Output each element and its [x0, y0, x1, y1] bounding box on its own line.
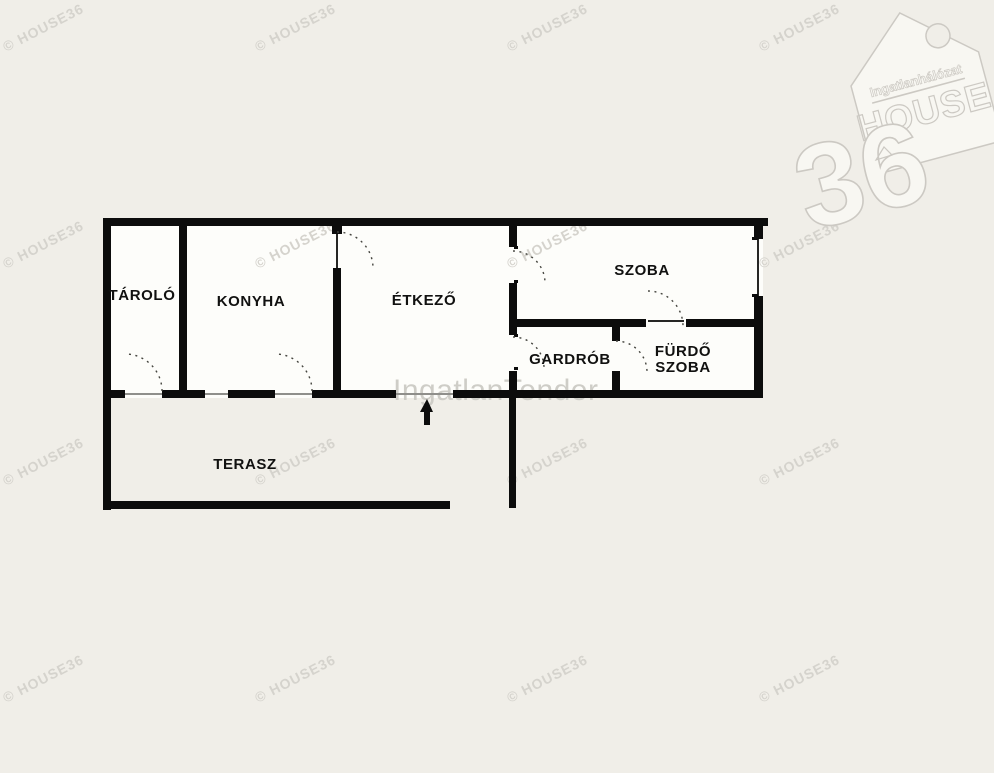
sill-line	[125, 393, 162, 395]
house36-logo: Ingatlanhálózat HOUSE 36	[781, 0, 994, 256]
sill-line	[396, 393, 453, 395]
door-jamb-tick	[514, 280, 518, 283]
sill-line	[275, 393, 312, 395]
watermark-tile: © HOUSE36	[756, 0, 842, 54]
wall-top	[103, 218, 768, 226]
wall-terasz-divider	[509, 398, 516, 508]
door-leaf-etkezo	[336, 234, 338, 268]
watermark-tile: © HOUSE36	[0, 434, 86, 488]
window-tick	[752, 237, 758, 240]
watermark-tile: © HOUSE36	[504, 0, 590, 54]
watermark-tile: © HOUSE36	[252, 651, 338, 705]
room-label-furdoszoba-line2: SZOBA	[655, 359, 711, 376]
wall-bottom-seg	[103, 390, 125, 398]
wall-left	[103, 218, 111, 510]
sill-line	[205, 393, 228, 395]
watermark-tile: © HOUSE36	[0, 217, 86, 271]
wall-bottom-seg	[162, 390, 205, 398]
room-label-tarolo: TÁROLÓ	[109, 286, 176, 304]
window-tick	[752, 294, 758, 297]
wall-konyha-etkezo	[333, 268, 341, 390]
wall-terasz-bottom	[103, 501, 450, 509]
wall-bottom-seg	[312, 390, 396, 398]
watermark-tile: © HOUSE36	[756, 434, 842, 488]
wall-bottom-seg	[517, 390, 762, 398]
wall-tarolo-konyha	[179, 226, 187, 390]
room-label-furdoszoba-line1: FÜRDŐ	[655, 342, 711, 360]
door-jamb-tick	[514, 246, 518, 249]
floorplan-canvas: © HOUSE36 © HOUSE36 © HOUSE36 © HOUSE36 …	[0, 0, 994, 768]
wall-szoba-bottom-left	[517, 319, 646, 327]
wall-etkezo-szoba-a	[509, 226, 517, 247]
floorplan-page: © HOUSE36 © HOUSE36 © HOUSE36 © HOUSE36 …	[0, 0, 994, 768]
room-label-terasz: TERASZ	[213, 456, 277, 473]
door-leaf-szoba	[648, 320, 684, 322]
watermark-tile: © HOUSE36	[0, 0, 86, 54]
watermark-tile: © HOUSE36	[0, 651, 86, 705]
room-label-szoba: SZOBA	[614, 262, 670, 279]
wall-szoba-bottom-right	[686, 319, 755, 327]
wall-right-lower	[754, 296, 763, 398]
watermark-tile: © HOUSE36	[504, 434, 590, 488]
wall-gardrob-furdo-a	[612, 327, 620, 341]
watermark-tile: © HOUSE36	[504, 651, 590, 705]
room-label-etkezo: ÉTKEZŐ	[392, 291, 456, 309]
wall-etkezo-szoba-b	[509, 283, 517, 335]
watermark-tile: © HOUSE36	[756, 651, 842, 705]
watermark-tile: © HOUSE36	[252, 0, 338, 54]
window-line-right	[757, 239, 759, 296]
wall-etkezo-szoba-c	[509, 371, 517, 398]
room-label-gardrob: GARDRÓB	[529, 350, 611, 368]
wall-bottom-seg	[453, 390, 510, 398]
room-label-konyha: KONYHA	[217, 293, 286, 310]
wall-bottom-seg	[228, 390, 275, 398]
arrow-stem	[424, 412, 430, 425]
door-jamb-tick	[514, 367, 518, 370]
